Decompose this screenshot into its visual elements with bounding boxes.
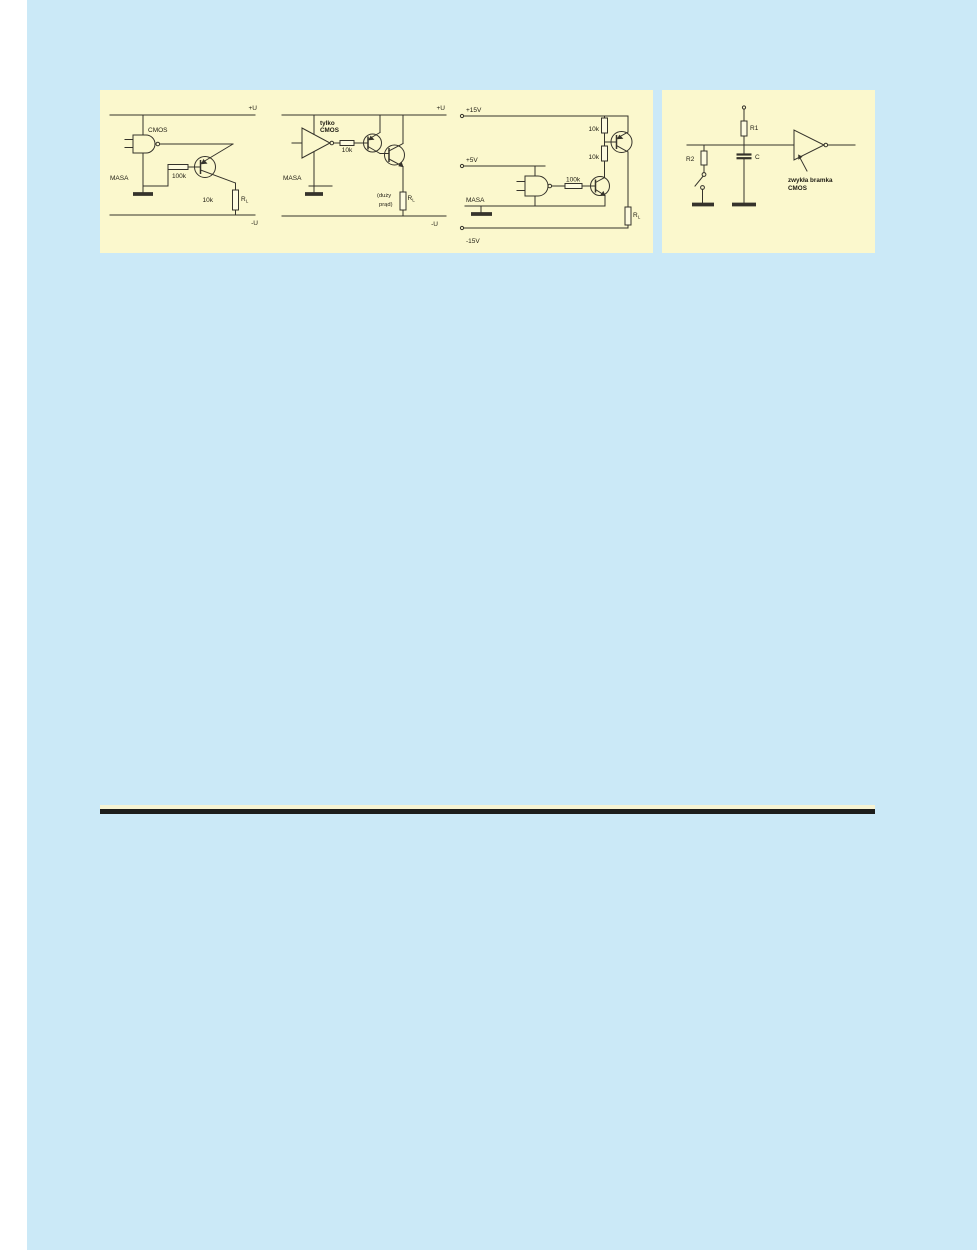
section-rule [100,809,875,814]
load-name-label: RL [241,196,249,204]
r1-label: R1 [750,125,759,132]
npn-transistor [591,177,610,207]
switch-lever [695,177,703,187]
rail-top-label: +15V [466,107,482,114]
emitter-wire [201,144,234,164]
load-value-label: 10k [203,197,214,204]
figure-panel-driver-circuits: +U -U CMOS MASA 100k [100,90,653,253]
circuit-inverter-darlington-buffer: +U -U tylko CMOS MASA 10k [282,105,446,228]
circuit-cmos-gate-pnp-follower: +U -U CMOS MASA 100k [110,105,258,227]
page-left-margin [0,0,27,1254]
gate-label-line2: CMOS [788,185,807,192]
label-pointer-arrow [798,154,807,171]
rail-mid-label: +5V [466,157,478,164]
negative-rail-label: -U [251,220,258,227]
resistor-r2-branch: R2 [686,145,714,205]
positive-rail-label: +U [249,105,258,112]
pnp-transistor-t1 [361,115,389,154]
base-resistor-label: 100k [566,177,581,184]
ground-label: MASA [466,197,485,204]
resistor-mid-label: 10k [589,154,600,161]
ground-label: MASA [283,175,302,182]
base-resistor-100k: 100k [168,165,195,187]
load-resistor: 10k RL [203,190,249,215]
collector-wire [596,178,605,183]
gate-label-line1: zwykła bramka [788,177,833,184]
r2-label: R2 [686,156,695,163]
base-resistor-100k: 100k [552,177,591,189]
rail-bottom-label: -15V [466,238,480,245]
negative-rail-label: -U [431,221,438,228]
figure-panel-rc-gate: R1 R2 C [662,90,875,253]
load-resistor: RL [625,207,641,228]
series-resistor-10k: 10k [334,141,361,155]
inverting-bubble [156,142,160,146]
gate-type-label: CMOS [148,127,168,134]
nand-gate-symbol [517,176,552,196]
inverting-bubble [548,184,552,188]
note-line2: prąd) [379,202,393,208]
note-line1: (duży [377,193,391,199]
pnp-transistor [611,116,632,207]
series-resistor-label: 10k [342,147,353,154]
resistor-top-label: 10k [589,126,600,133]
load-name-label: RL [633,212,641,220]
schematic-panel-2: R1 R2 C [662,90,875,253]
capacitor-branch: C [732,145,760,205]
load-subscript: L [246,199,249,204]
base-resistor-label: 100k [172,173,187,180]
collector-wire [617,146,629,153]
capacitor-label: C [755,154,760,161]
gate-label-line1: tylko [320,120,335,127]
load-subscript: L [638,215,641,220]
circuit-level-shifter-15v: +15V +5V -15V 10k 10k RL [460,107,640,245]
pnp-transistor [195,144,236,190]
load-subscript: L [412,198,415,203]
nand-gate-symbol [125,135,160,153]
ground-label: MASA [110,175,129,182]
collector-wire [201,170,236,183]
circuit-rc-cmos-gate: R1 R2 C [686,106,855,205]
load-name-label: RL [408,195,416,203]
switch-symbol [695,173,706,190]
gate-label-line2: CMOS [320,127,339,134]
load-resistor: RL [400,192,415,216]
resistor-r1: R1 [741,121,759,136]
schematic-panel-1: +U -U CMOS MASA 100k [100,90,653,253]
positive-rail-label: +U [437,105,446,112]
inverter-gate-symbol [794,130,855,160]
